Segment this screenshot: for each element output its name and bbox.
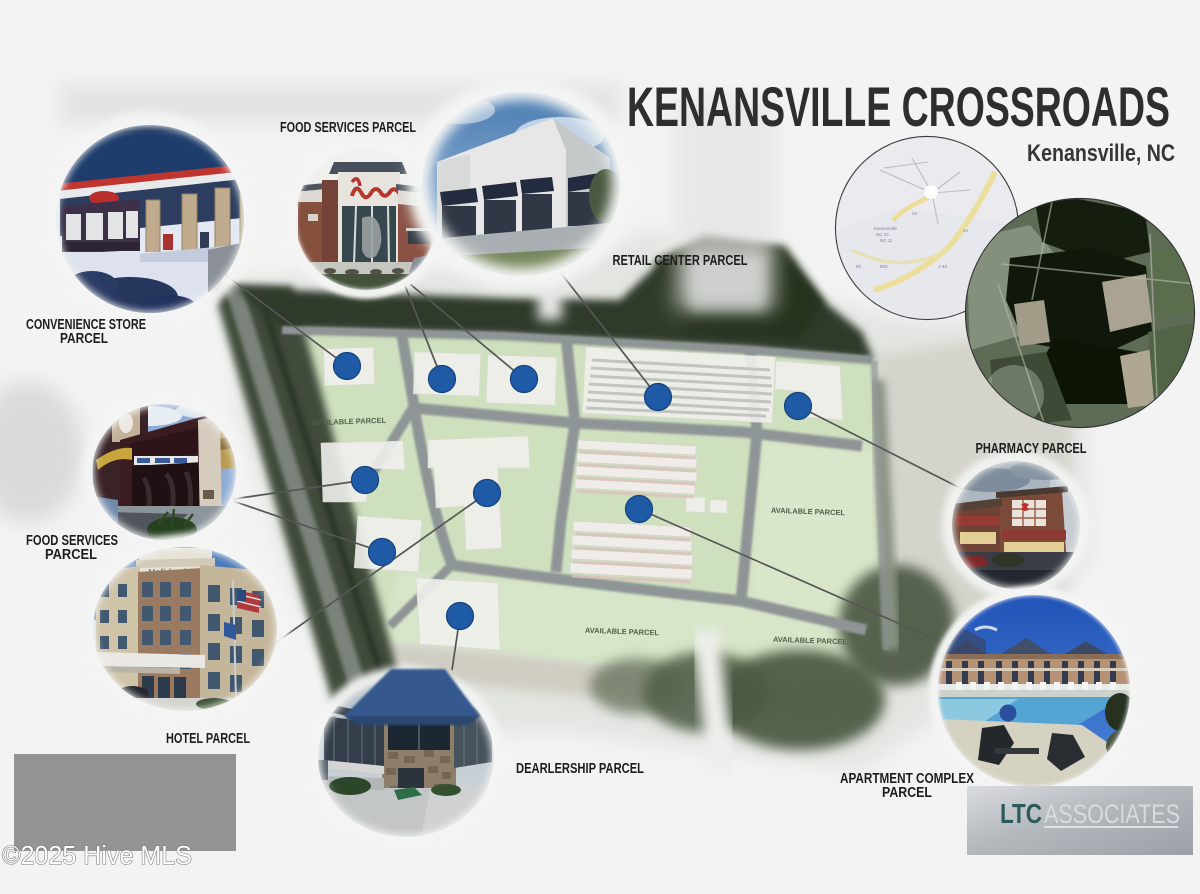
svg-text:PHARMACY PARCEL: PHARMACY PARCEL [976,441,1087,457]
svg-text:©2025 Hive MLS: ©2025 Hive MLS [2,840,192,870]
svg-text:NC 11: NC 11 [880,238,893,243]
svg-text:1-40: 1-40 [938,264,948,269]
svg-text:Kenansville, NC: Kenansville, NC [1027,140,1175,167]
svg-text:ASSOCIATES: ASSOCIATES [1044,799,1180,829]
svg-text:RETAIL CENTER PARCEL: RETAIL CENTER PARCEL [613,253,748,269]
svg-text:KENANSVILLE CROSSROADS: KENANSVILLE CROSSROADS [627,75,1170,138]
svg-text:24: 24 [963,228,969,233]
svg-text:PARCEL: PARCEL [60,331,108,347]
svg-text:NC 24: NC 24 [876,232,889,237]
svg-text:DEARLERSHIP PARCEL: DEARLERSHIP PARCEL [516,761,644,777]
svg-text:50: 50 [856,264,862,269]
svg-text:903: 903 [880,264,888,269]
svg-text:HOTEL PARCEL: HOTEL PARCEL [166,731,250,747]
svg-text:LTC: LTC [1000,798,1042,829]
svg-text:PARCEL: PARCEL [882,785,932,801]
svg-text:Kenansville: Kenansville [874,226,898,231]
svg-text:FOOD SERVICES PARCEL: FOOD SERVICES PARCEL [280,120,416,136]
svg-text:24: 24 [912,211,918,216]
svg-text:PARCEL: PARCEL [45,547,97,563]
